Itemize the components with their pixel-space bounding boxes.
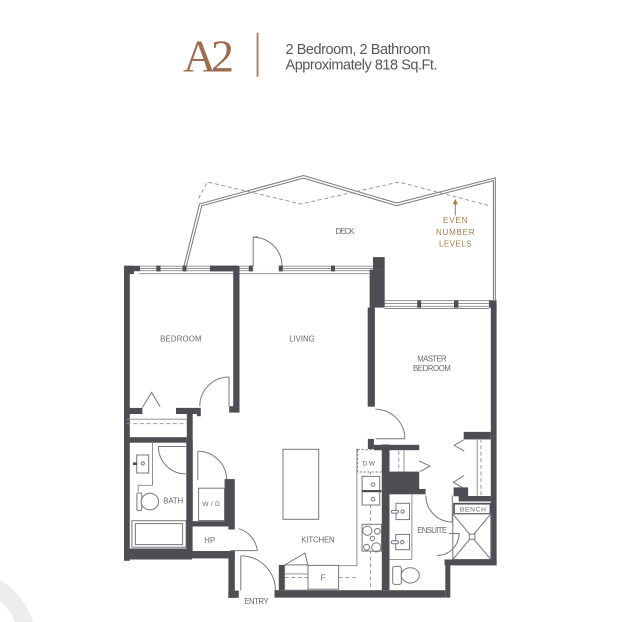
svg-text:BATH: BATH [163, 497, 184, 506]
svg-text:KITCHEN: KITCHEN [301, 536, 336, 545]
svg-text:LIVING: LIVING [289, 334, 316, 343]
svg-text:NUMBER: NUMBER [436, 228, 475, 237]
svg-text:DECK: DECK [336, 227, 356, 236]
svg-text:LEVELS: LEVELS [439, 239, 472, 248]
svg-text:W/D: W/D [202, 501, 221, 508]
svg-text:EVEN: EVEN [443, 216, 468, 225]
svg-text:ENTRY: ENTRY [244, 597, 270, 606]
svg-text:HP: HP [204, 536, 216, 545]
svg-text:A2: A2 [183, 31, 234, 82]
svg-text:MASTER: MASTER [417, 354, 448, 363]
svg-text:F: F [320, 574, 326, 583]
svg-text:BEDROOM: BEDROOM [160, 334, 203, 343]
svg-text:BEDROOM: BEDROOM [413, 364, 452, 373]
svg-text:ENSUITE: ENSUITE [417, 526, 448, 535]
svg-text:DW: DW [362, 461, 376, 468]
svg-text:2 Bedroom, 2 Bathroom: 2 Bedroom, 2 Bathroom [286, 42, 431, 58]
svg-text:BENCH: BENCH [460, 507, 487, 514]
svg-text:Approximately 818 Sq.Ft.: Approximately 818 Sq.Ft. [286, 57, 438, 73]
